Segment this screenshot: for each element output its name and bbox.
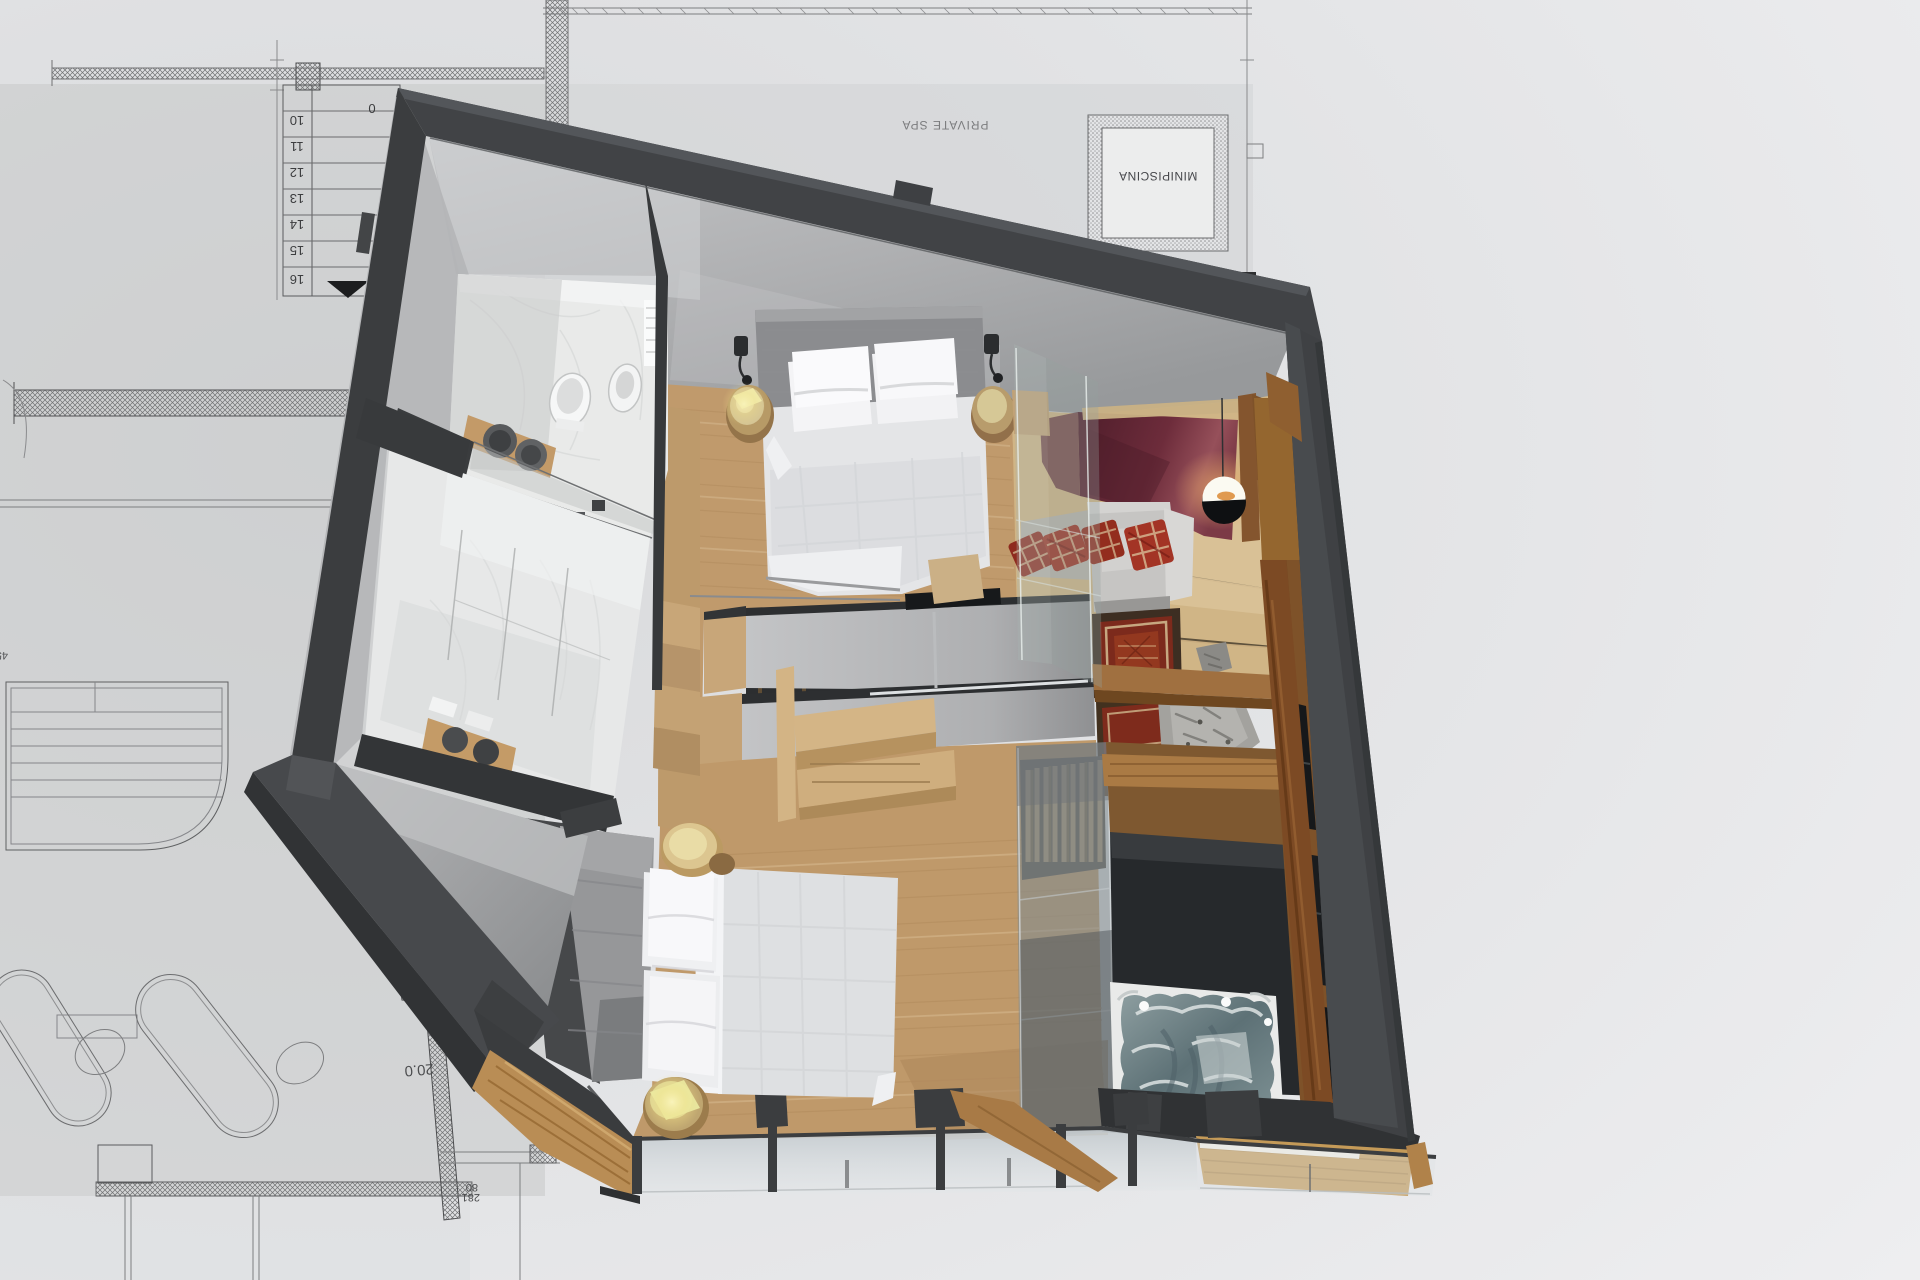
svg-text:15: 15 — [290, 243, 304, 258]
svg-text:10: 10 — [290, 113, 304, 128]
svg-text:14: 14 — [290, 217, 304, 232]
svg-text:11: 11 — [290, 139, 304, 154]
svg-text:12: 12 — [290, 165, 304, 180]
svg-text:16: 16 — [290, 272, 304, 287]
svg-text:45: 45 — [0, 649, 8, 661]
svg-text:0: 0 — [368, 101, 375, 116]
svg-text:13: 13 — [290, 191, 304, 206]
svg-text:MINIPISCINA: MINIPISCINA — [1119, 169, 1198, 183]
svg-text:20.0: 20.0 — [404, 1060, 435, 1079]
svg-text:281: 281 — [462, 1191, 480, 1203]
svg-text:PRIVATE SPA: PRIVATE SPA — [901, 118, 988, 132]
